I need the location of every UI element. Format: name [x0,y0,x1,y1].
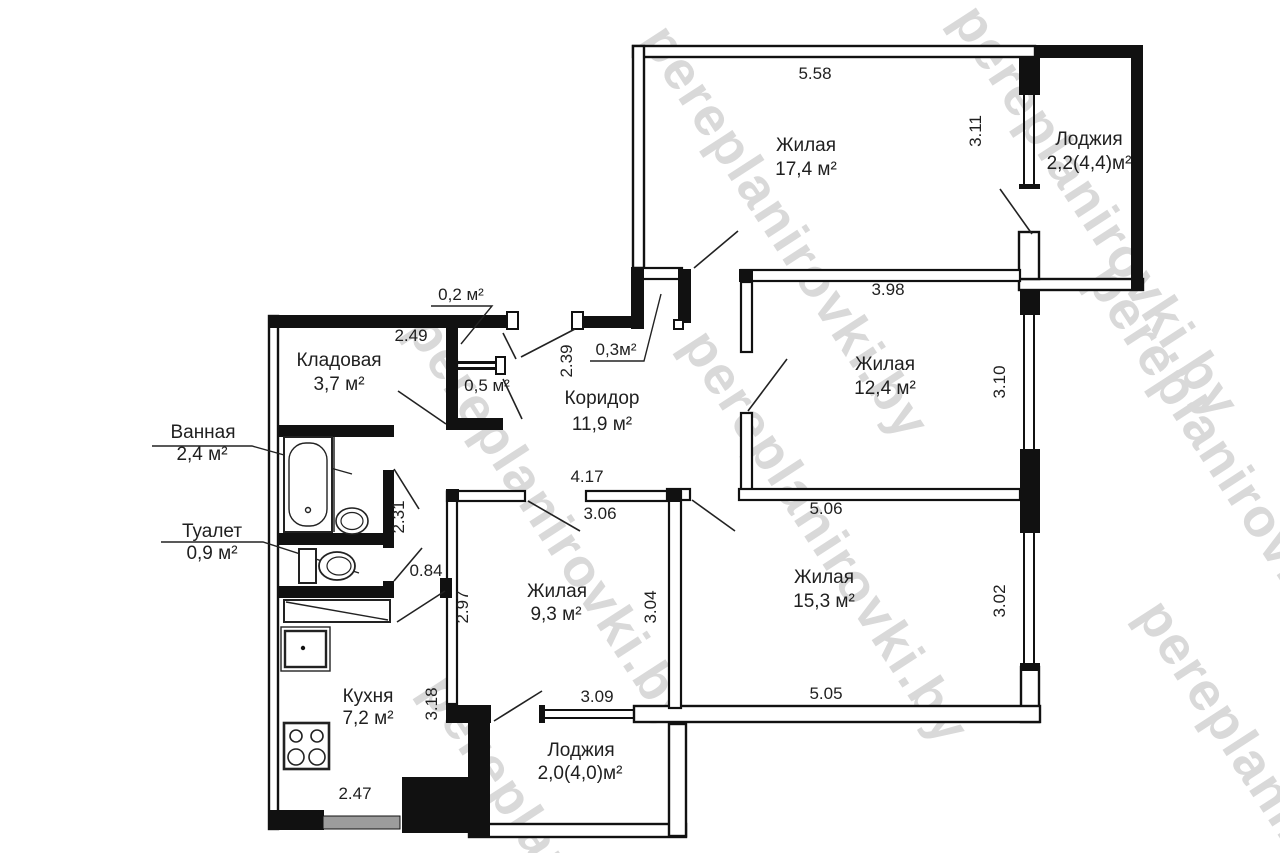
watermark-text: pereplanirovki.by [1125,589,1280,853]
watermarks: pereplanirovki.by pereplanirovki.by pere… [395,0,1280,853]
wall [739,489,1020,500]
door-swing-living1 [694,231,738,268]
dim-living4-top: 5.06 [809,499,842,518]
dim-living3-top: 3.06 [583,504,616,523]
dim-bath-wall: 2.31 [389,500,408,533]
room-toilet-name: Туалет [182,521,242,542]
wall [458,361,498,364]
dim-living4-bottom: 5.05 [809,684,842,703]
room-living4-area: 15,3 м² [793,591,855,612]
wall [446,316,458,427]
door-swing-living4 [692,500,735,531]
dim-living3-left: 2.97 [453,590,472,623]
dim-loggia1-side: 3.11 [966,115,985,147]
room-bathroom-area: 2,4 м² [176,444,227,465]
wall [1035,45,1143,58]
room-living2-name: Жилая [855,354,915,375]
door-mark-closet02 [503,333,516,359]
room-storage-area: 3,7 м² [313,374,364,395]
wall [633,46,644,268]
room-bathroom-name: Ванная [170,422,235,443]
wall [440,578,452,598]
wall [669,492,681,708]
wall [278,533,394,545]
closet-jamb [674,320,683,329]
entry-door-jamb [572,312,583,329]
door-swing-balcony [1000,189,1032,234]
wall [1019,184,1040,189]
wall [446,489,459,502]
room-living1-area: 17,4 м² [775,159,837,180]
dim-loggia2-top: 3.09 [580,687,613,706]
dim-kitchen-right: 3.18 [422,687,441,720]
closet-02-label: 0,2 м² [438,285,484,304]
wall [402,777,470,833]
closet-05-label: 0,5 м² [464,376,510,395]
room-living2-area: 12,4 м² [854,378,916,399]
wall [668,489,682,502]
wall [739,269,753,282]
floor-plan-page: pereplanirovki.by pereplanirovki.by pere… [0,0,1280,853]
dim-hall-entry: 2.39 [557,344,576,377]
wall [1020,449,1040,533]
room-kitchen-area: 7,2 м² [342,708,393,729]
wall [468,723,490,838]
wall [269,316,278,829]
room-kitchen-name: Кухня [343,686,394,707]
room-toilet-area: 0,9 м² [186,543,237,564]
wall [278,586,394,598]
wall [1020,663,1040,671]
wall [741,282,752,352]
bathtub [284,437,334,532]
dim-living2-side: 3.10 [990,365,1009,398]
kitchen-sink [281,627,330,671]
dim-corridor-width: 4.17 [570,467,603,486]
wall [458,367,498,370]
door-swing-kitchen [397,591,445,622]
kitchen-window [323,816,400,829]
room-loggia1-area: 2,2(4,4)м² [1047,153,1132,174]
window-living2 [1020,314,1040,449]
entry-door-jamb [507,312,518,329]
room-corridor-name: Коридор [564,388,639,409]
floor-plan: pereplanirovki.by pereplanirovki.by pere… [0,0,1280,853]
stove [284,723,329,769]
watermark-text: pereplanirovki.by [395,304,707,740]
exterior-walls [269,46,1143,837]
room-living3-area: 9,3 м² [530,604,581,625]
wall [1131,45,1143,291]
room-living4-name: Жилая [794,567,854,588]
dim-living2-top: 3.98 [871,280,904,299]
wall [446,705,491,723]
dim-living3-right: 3.04 [641,590,660,623]
wall [634,706,1040,722]
window-living4 [1024,533,1034,663]
closet-jamb [496,357,505,374]
dim-living1-top: 5.58 [798,64,831,83]
wall [268,810,324,830]
built-in-wardrobe [284,600,390,622]
room-corridor-area: 11,9 м² [572,414,632,435]
window-loggia2 [545,710,633,718]
dim-kitchen-bottom: 2.47 [338,784,371,803]
room-living3-name: Жилая [527,581,587,602]
room-storage-name: Кладовая [296,350,381,371]
wall [383,425,394,437]
room-loggia2-name: Лоджия [547,740,614,761]
closet-03-label: 0,3м² [596,340,637,359]
wall [539,705,545,723]
wall [633,46,1035,57]
wall [469,824,686,837]
bathroom-sink [336,508,368,534]
dim-toilet-wall: 0.84 [409,561,442,580]
dim-living4-right: 3.02 [990,584,1009,617]
door-swing-loggia2 [494,691,542,721]
wall [669,724,686,836]
dim-storage-top: 2.49 [394,326,427,345]
room-loggia1-name: Лоджия [1055,129,1122,150]
wall [383,581,394,598]
room-loggia2-area: 2,0(4,0)м² [538,763,623,784]
wall [278,425,390,437]
watermark-text: pereplanirovki.by [940,0,1252,430]
toilet [299,549,355,583]
wall [1019,57,1040,95]
wall [678,269,691,323]
room-living1-name: Жилая [776,135,836,156]
wall [1019,279,1143,290]
wall [586,491,667,501]
wall [446,418,503,430]
wall [1019,232,1039,279]
wall [741,413,752,490]
wall [1020,290,1040,314]
